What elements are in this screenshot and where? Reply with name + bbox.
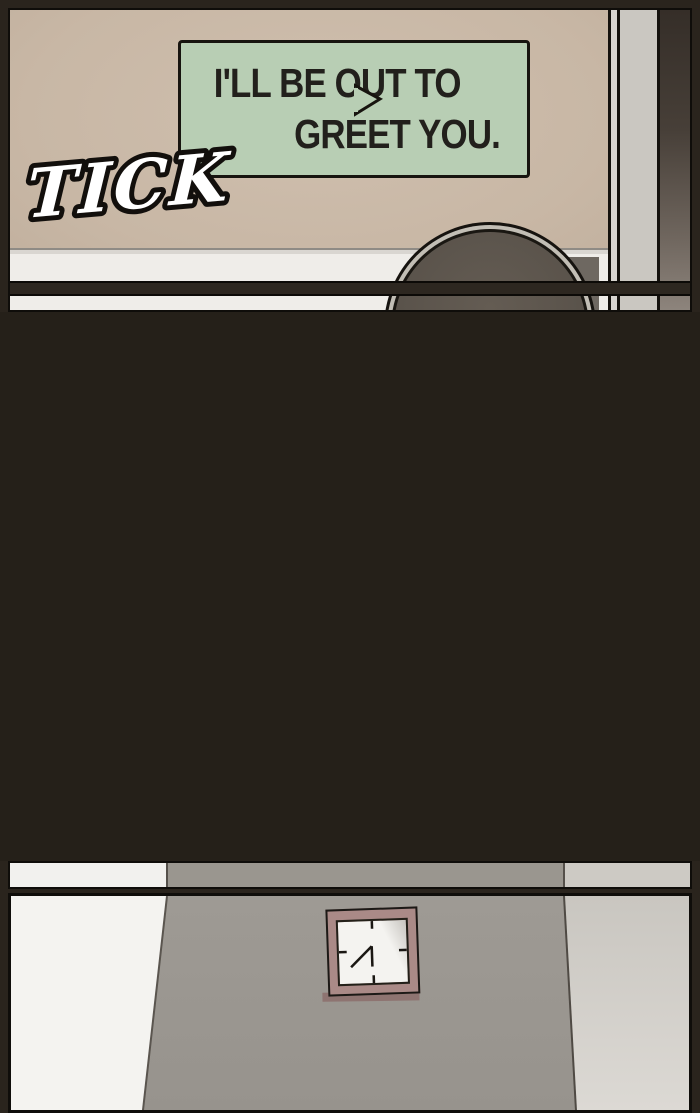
panel-darkness: [0, 312, 700, 861]
wall-edge-line: [166, 863, 168, 887]
webtoon-page: I'LL BE OUT TO GREET YOU. TICK TICK: [0, 0, 700, 1113]
panel-office-scene: I'LL BE OUT TO GREET YOU. TICK TICK: [8, 8, 692, 312]
panel-gutter-band: [8, 281, 692, 296]
light-wall-section: [551, 896, 689, 1110]
speech-bubble-tail: [354, 82, 384, 118]
doorframe-strip-wide: [620, 10, 657, 310]
light-wall-section: [565, 863, 690, 887]
clock-face: [336, 918, 410, 986]
wall-clock: [325, 906, 420, 1004]
clock-hands-icon: [338, 920, 408, 984]
svg-text:TICK: TICK: [25, 137, 233, 234]
sfx-tick: TICK TICK: [22, 122, 252, 242]
wall-edge-line: [563, 863, 565, 887]
panel-hallway-clock: [8, 893, 692, 1113]
clock-frame: [325, 906, 420, 996]
white-wall-section: [10, 863, 167, 887]
panel-hallway-sliver: [8, 861, 692, 889]
dark-door-column: [660, 10, 690, 310]
